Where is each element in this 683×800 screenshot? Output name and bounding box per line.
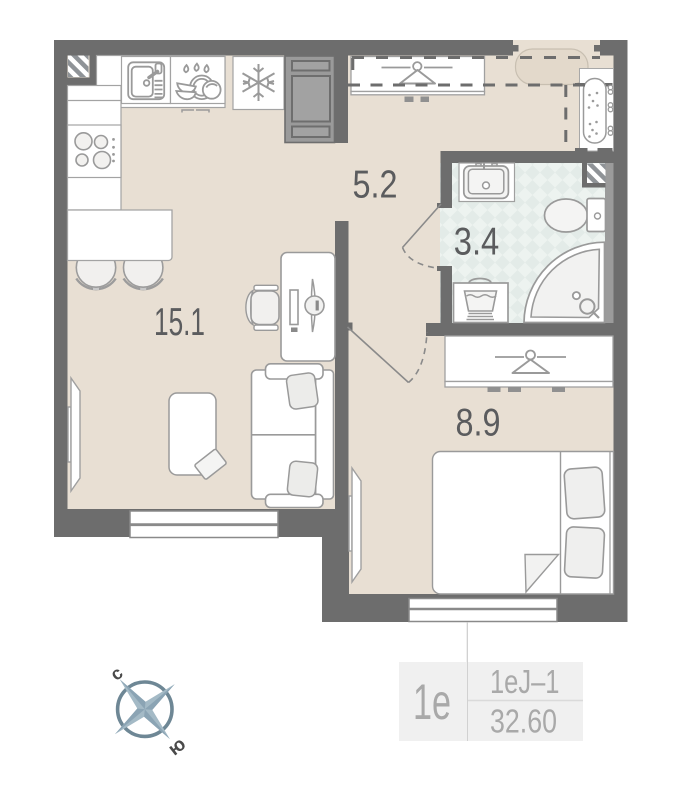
svg-text:1е: 1е bbox=[413, 675, 451, 731]
svg-text:8.9: 8.9 bbox=[455, 401, 500, 444]
svg-text:15.1: 15.1 bbox=[154, 300, 205, 343]
svg-text:3.4: 3.4 bbox=[454, 220, 499, 263]
svg-text:1еJ–1: 1еJ–1 bbox=[490, 664, 559, 701]
svg-text:5.2: 5.2 bbox=[352, 163, 397, 206]
svg-text:с: с bbox=[106, 663, 126, 685]
svg-text:32.60: 32.60 bbox=[490, 704, 557, 740]
